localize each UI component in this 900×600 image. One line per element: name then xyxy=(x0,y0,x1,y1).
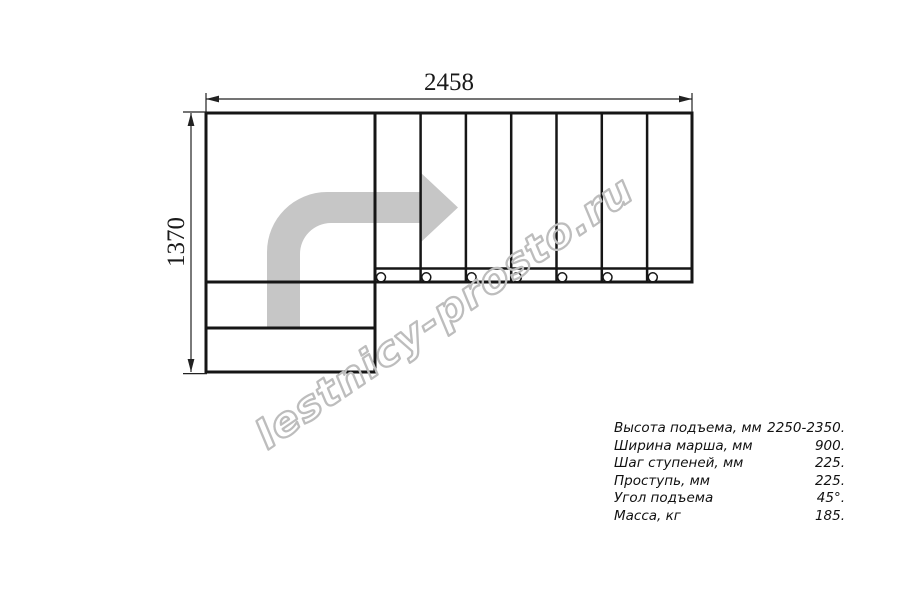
spec-row-step-pitch: Шаг ступеней, мм 225. xyxy=(614,455,845,473)
spec-row-mass: Масса, кг 185. xyxy=(614,508,845,526)
fastener-circle xyxy=(422,273,431,282)
dim-arrowhead-left-icon xyxy=(206,96,219,103)
spec-row-tread: Проступь, мм 225. xyxy=(614,473,845,491)
height-dimension-label: 1370 xyxy=(163,217,190,267)
dim-arrowhead-down-icon xyxy=(188,359,195,372)
spec-row-flight-width: Ширина марша, мм 900. xyxy=(614,438,845,456)
spec-label: Высота подъема, мм xyxy=(614,420,762,438)
fastener-circle xyxy=(648,273,657,282)
fastener-circle xyxy=(377,273,386,282)
spec-value: 225. xyxy=(815,473,845,491)
spec-row-angle: Угол подъема 45°. xyxy=(614,490,845,508)
spec-label: Проступь, мм xyxy=(614,473,710,491)
fastener-circle xyxy=(603,273,612,282)
fastener-circle xyxy=(558,273,567,282)
spec-value: 900. xyxy=(815,438,845,456)
dim-arrowhead-up-icon xyxy=(188,113,195,126)
spec-label: Ширина марша, мм xyxy=(614,438,753,456)
spec-value: 225. xyxy=(815,455,845,473)
spec-label: Масса, кг xyxy=(614,508,681,526)
stair-plan-drawing: 2458 1370 lestnicy-prosto.ru Высота подъ… xyxy=(0,0,900,600)
width-dimension-label: 2458 xyxy=(424,69,474,96)
spec-value: 2250-2350. xyxy=(767,420,845,438)
spec-label: Угол подъема xyxy=(614,490,713,508)
spec-value: 185. xyxy=(815,508,845,526)
spec-table: Высота подъема, мм 2250-2350. Ширина мар… xyxy=(614,420,845,525)
spec-label: Шаг ступеней, мм xyxy=(614,455,743,473)
spec-row-height: Высота подъема, мм 2250-2350. xyxy=(614,420,845,438)
spec-value: 45°. xyxy=(817,490,845,508)
dim-arrowhead-right-icon xyxy=(679,96,692,103)
